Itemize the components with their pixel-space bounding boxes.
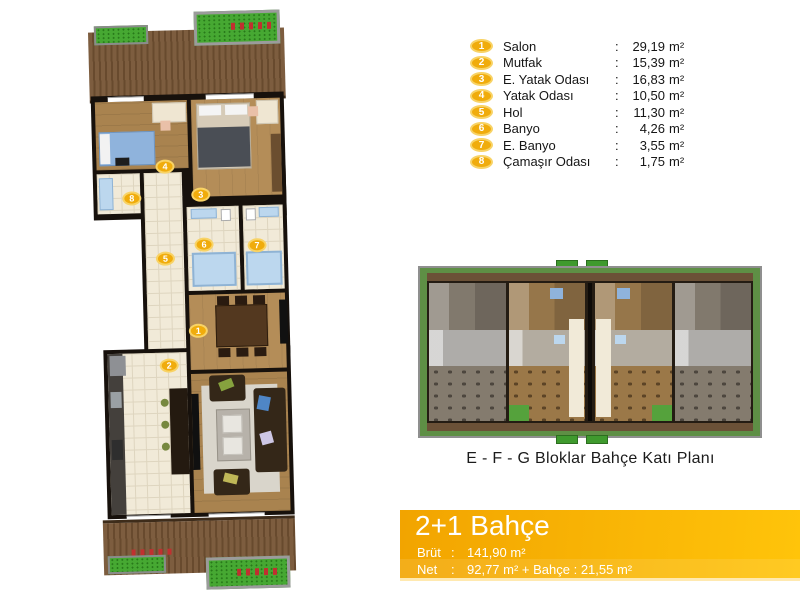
legend-item-area: 10,50: [625, 88, 665, 103]
fridge: [109, 356, 126, 376]
legend-row: 5Hol:11,30m²: [470, 104, 740, 121]
planter-vent-dashes: [231, 22, 273, 30]
chair: [235, 296, 247, 305]
bathtub: [246, 251, 283, 286]
unit-bathrooms: [675, 330, 752, 366]
coffee-table-top: [222, 415, 242, 434]
legend-item-badge: 2: [470, 56, 493, 70]
key-plan-caption: E - F - G Bloklar Bahçe Katı Planı: [378, 450, 800, 468]
legend-item-label: Mutfak: [503, 55, 615, 70]
legend-row: 6Banyo:4,26m²: [470, 121, 740, 138]
chair: [253, 295, 265, 304]
legend-item-badge: 8: [470, 155, 493, 169]
unit-bedrooms: [429, 283, 506, 330]
net-area-value: 92,77 m² + Bahçe : 21,55 m²: [467, 562, 632, 577]
desk-chair: [160, 120, 170, 130]
key-plan-unit-2: [509, 283, 586, 421]
key-plan-building: [418, 266, 762, 438]
net-area-line: Net : 92,77 m² + Bahçe : 21,55 m²: [417, 562, 632, 577]
main-floor-plan: 12345678: [77, 3, 302, 594]
legend-item-colon: :: [615, 72, 625, 87]
legend-item-area: 16,83: [625, 72, 665, 87]
sink: [191, 208, 217, 219]
legend-item-unit: m²: [669, 55, 684, 70]
legend-item-area: 29,19: [625, 39, 665, 54]
unit-garden: [652, 405, 672, 421]
key-plan-unit-4: [675, 283, 752, 421]
legend-item-label: Hol: [503, 105, 615, 120]
unit-bedrooms: [675, 283, 752, 330]
legend-item-colon: :: [615, 39, 625, 54]
legend-item-area: 15,39: [625, 55, 665, 70]
gross-area-line: Brüt : 141,90 m²: [417, 545, 526, 560]
legend-item-colon: :: [615, 55, 625, 70]
legend-item-badge: 4: [470, 89, 493, 103]
chair: [254, 347, 266, 356]
legend-item-area: 1,75: [625, 154, 665, 169]
unit-bathrooms: [429, 330, 506, 366]
net-area-colon: :: [451, 562, 467, 577]
banner-underline: [400, 578, 800, 581]
legend-item-area: 11,30: [625, 105, 665, 120]
legend-item-area: 3,55: [625, 138, 665, 153]
key-plan-interior: [427, 273, 753, 431]
toilet: [221, 209, 231, 221]
toilet: [246, 208, 256, 220]
legend-item-label: Banyo: [503, 121, 615, 136]
bed-throw: [115, 158, 129, 166]
legend-row: 8Çamaşır Odası:1,75m²: [470, 154, 740, 171]
key-plan-unit-1: [429, 283, 506, 421]
planter-vent-dashes: [237, 568, 281, 576]
unit-bath: [615, 335, 626, 344]
legend-row: 7E. Banyo:3,55m²: [470, 137, 740, 154]
key-plan-planter: [586, 435, 608, 444]
unit-bath: [554, 335, 565, 344]
planter-top-right: [193, 10, 280, 46]
legend-item-badge: 3: [470, 72, 493, 86]
legend-item-area: 4,26: [625, 121, 665, 136]
unit-bed: [617, 288, 630, 299]
legend-item-colon: :: [615, 121, 625, 136]
legend-item-badge: 1: [470, 39, 493, 53]
net-area-label: Net: [417, 562, 451, 577]
key-plan: E - F - G Bloklar Bahçe Katı Planı: [418, 260, 763, 474]
gross-area-label: Brüt: [417, 545, 451, 560]
legend-item-unit: m²: [669, 88, 684, 103]
planter-top-left: [94, 25, 148, 45]
legend-row: 4Yatak Odası:10,50m²: [470, 88, 740, 105]
legend-item-badge: 6: [470, 122, 493, 136]
stove: [112, 440, 124, 460]
legend-item-colon: :: [615, 138, 625, 153]
legend-item-colon: :: [615, 154, 625, 169]
legend: 1Salon:29,19m²2Mutfak:15,39m²3E. Yatak O…: [470, 38, 740, 170]
desk-chair: [248, 106, 258, 116]
kitchen-sink: [110, 392, 121, 408]
legend-row: 3E. Yatak Odası:16,83m²: [470, 71, 740, 88]
coffee-table-top: [223, 437, 243, 456]
pillow: [199, 105, 221, 116]
kitchen-island: [169, 388, 189, 474]
legend-item-unit: m²: [669, 154, 684, 169]
planter-bottom-right: [206, 555, 291, 589]
unit-hall: [596, 319, 611, 417]
unit-living: [675, 366, 752, 421]
legend-item-colon: :: [615, 88, 625, 103]
unit-living: [429, 366, 506, 421]
bathtub: [192, 252, 237, 287]
legend-item-label: Yatak Odası: [503, 88, 615, 103]
fireplace: [279, 299, 288, 343]
legend-item-label: E. Banyo: [503, 138, 615, 153]
pillow: [257, 395, 271, 411]
unit-garden: [509, 405, 529, 421]
legend-row: 1Salon:29,19m²: [470, 38, 740, 55]
legend-row: 2Mutfak:15,39m²: [470, 55, 740, 72]
chair: [218, 348, 230, 357]
legend-item-unit: m²: [669, 72, 684, 87]
planter-bottom-left: [108, 555, 166, 575]
bed-blanket: [198, 126, 251, 167]
gross-area-value: 141,90 m²: [467, 545, 526, 560]
dining-table: [215, 304, 268, 347]
washer: [99, 178, 114, 210]
legend-item-badge: 7: [470, 138, 493, 152]
legend-item-unit: m²: [669, 39, 684, 54]
wardrobe: [271, 134, 283, 192]
unit-type-banner: 2+1 Bahçe Brüt : 141,90 m² Net : 92,77 m…: [400, 510, 800, 578]
chair: [236, 347, 248, 356]
legend-item-label: Salon: [503, 39, 615, 54]
key-plan-center-wall: [588, 283, 592, 421]
gross-area-colon: :: [451, 545, 467, 560]
pillow: [100, 134, 111, 164]
legend-item-label: E. Yatak Odası: [503, 72, 615, 87]
legend-item-unit: m²: [669, 105, 684, 120]
legend-item-unit: m²: [669, 138, 684, 153]
chair: [217, 296, 229, 305]
legend-item-colon: :: [615, 105, 625, 120]
legend-item-label: Çamaşır Odası: [503, 154, 615, 169]
window: [108, 96, 144, 102]
key-plan-planter: [556, 435, 578, 444]
legend-item-unit: m²: [669, 121, 684, 136]
floor-plan-sheet: 12345678 1Salon:29,19m²2Mutfak:15,39m²3E…: [0, 0, 800, 600]
unit-hall: [569, 319, 584, 417]
unit-type-title: 2+1 Bahçe: [415, 510, 550, 542]
key-plan-unit-3: [595, 283, 672, 421]
sink: [259, 207, 279, 218]
legend-item-badge: 5: [470, 105, 493, 119]
pillow: [225, 104, 247, 115]
desk: [256, 100, 279, 125]
unit-bed: [550, 288, 563, 299]
